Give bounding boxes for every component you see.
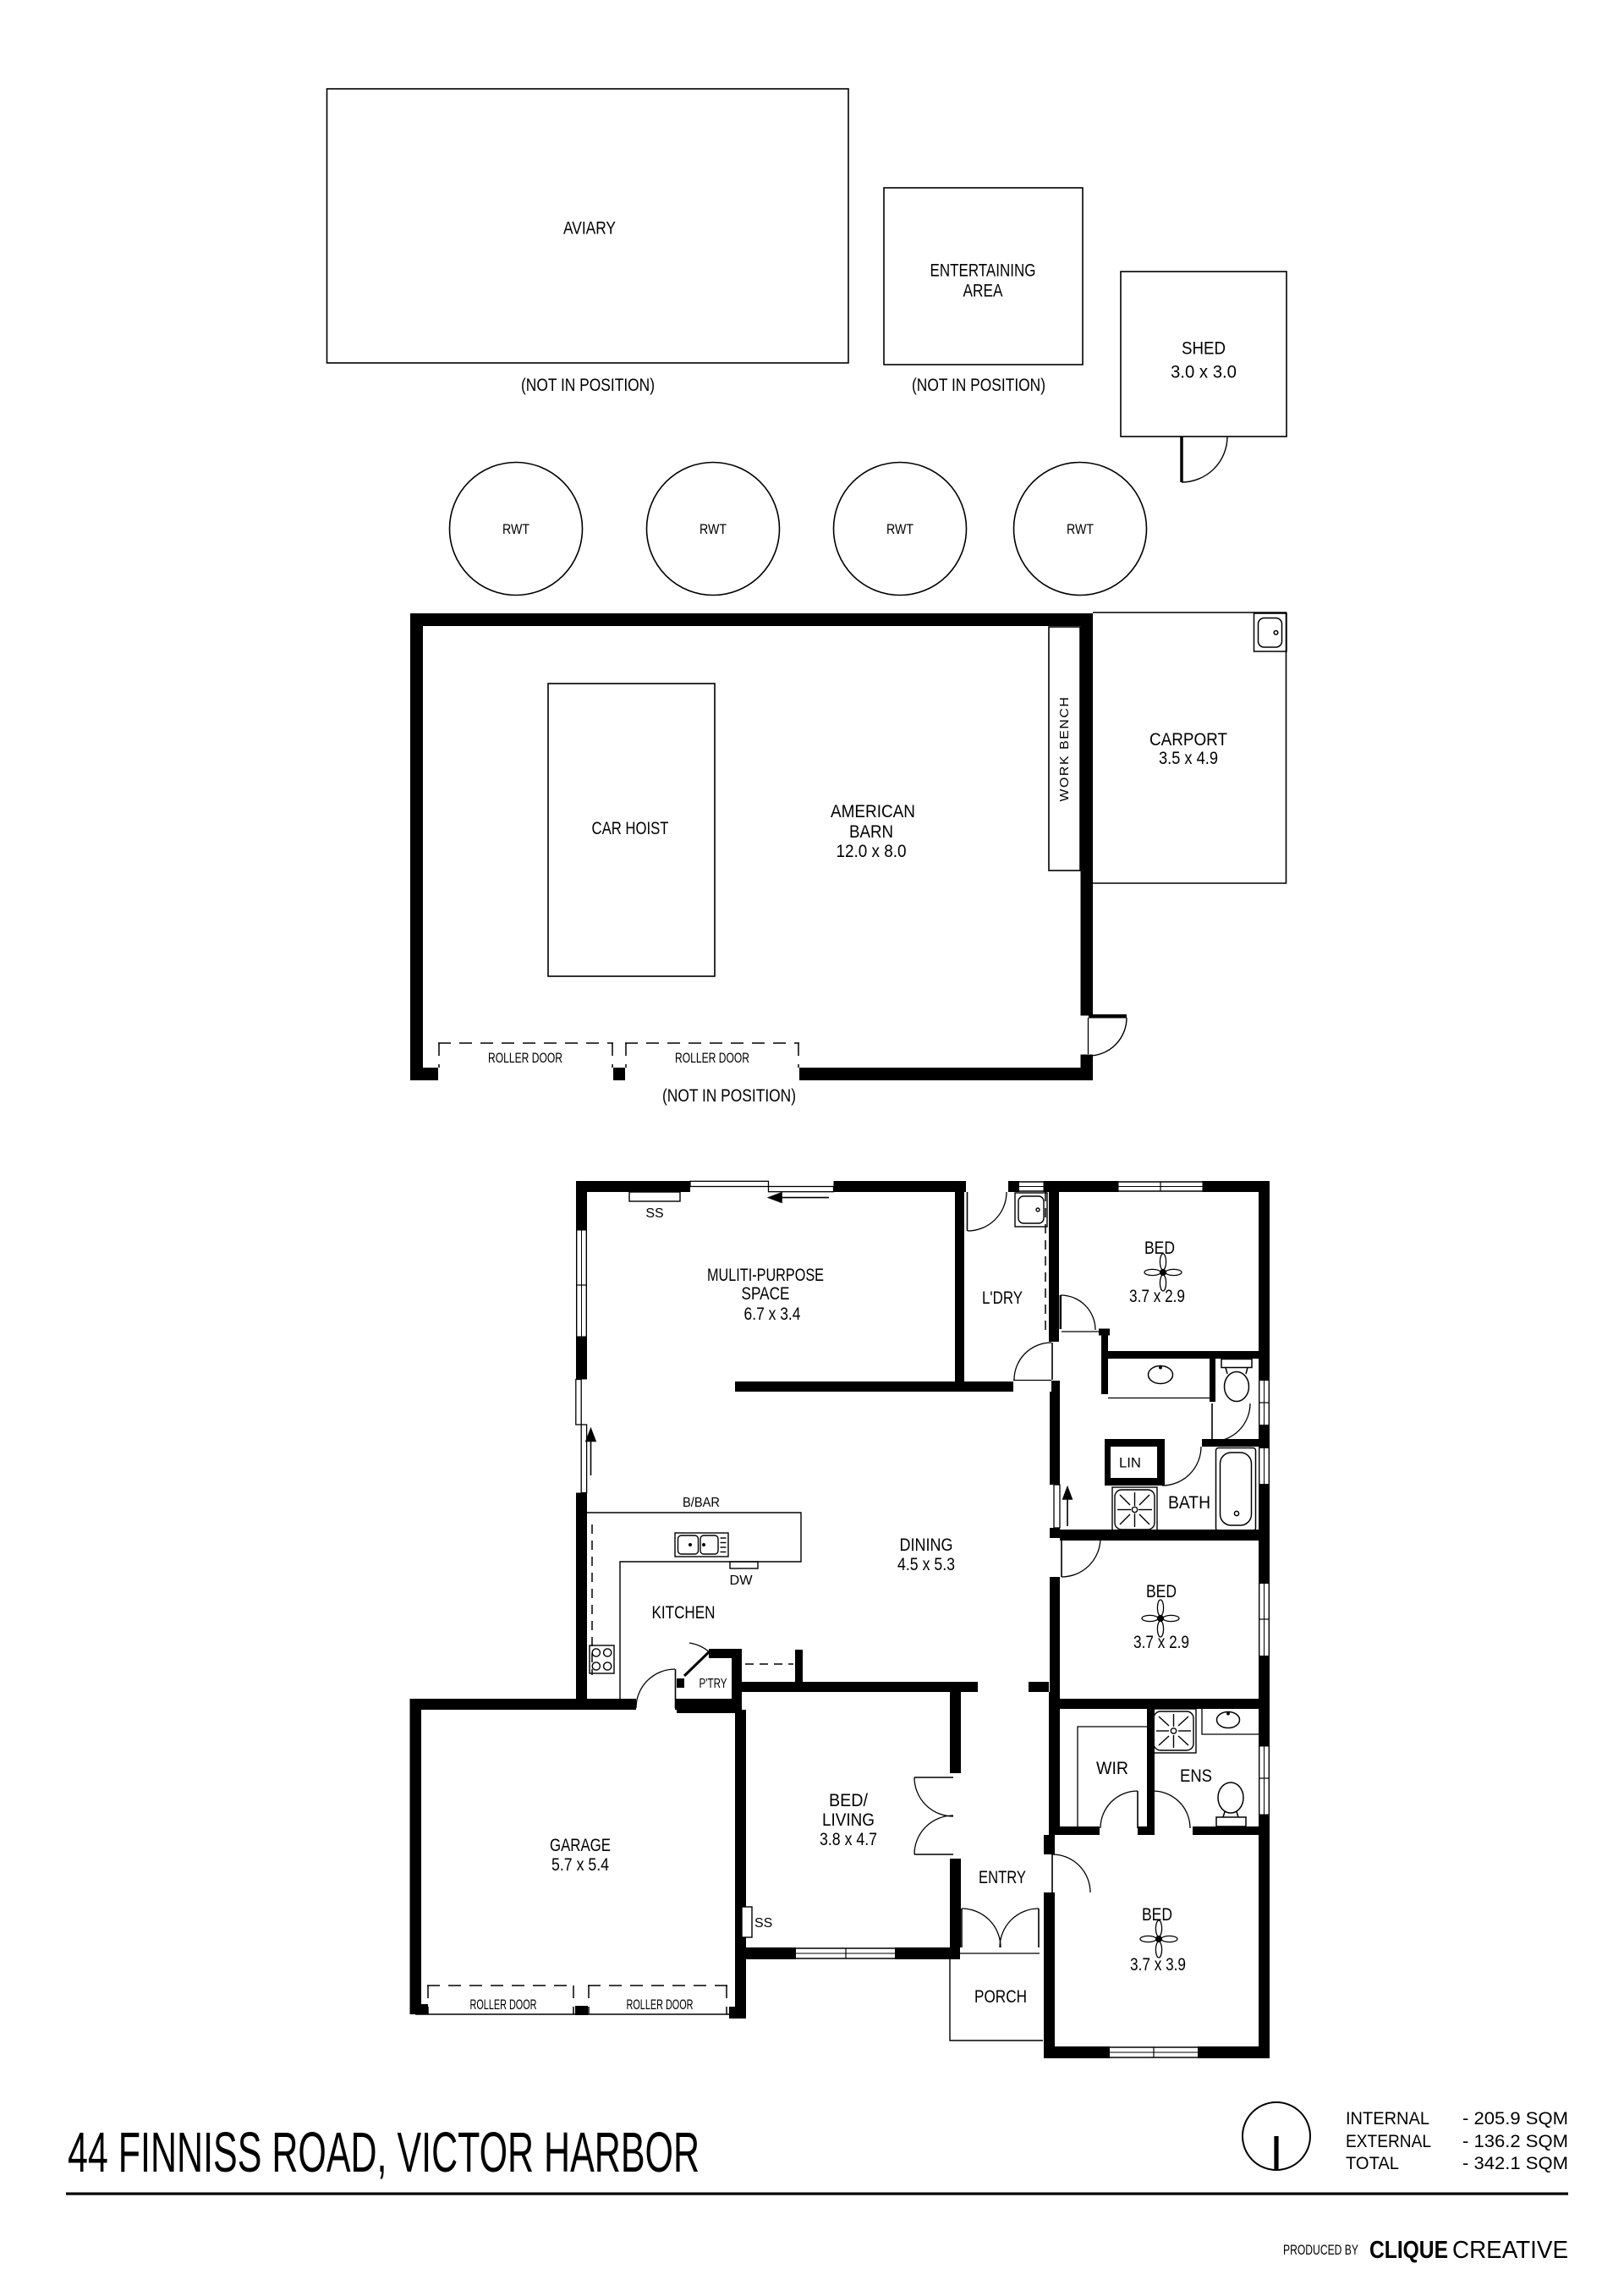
svg-text:5.7 x 5.4: 5.7 x 5.4 — [551, 1855, 609, 1875]
svg-text:P'TRY: P'TRY — [700, 1677, 727, 1691]
svg-text:GARAGE: GARAGE — [550, 1836, 611, 1855]
svg-text:CLIQUE: CLIQUE — [1369, 2237, 1448, 2264]
svg-text:ENS: ENS — [1180, 1766, 1212, 1786]
svg-text:- 342.1 SQM: - 342.1 SQM — [1462, 2153, 1568, 2173]
svg-text:3.5 x 4.9: 3.5 x 4.9 — [1159, 749, 1218, 768]
svg-text:BED: BED — [1144, 1239, 1175, 1258]
svg-text:BED: BED — [1146, 1582, 1177, 1601]
svg-text:ROLLER DOOR: ROLLER DOOR — [627, 1997, 694, 2013]
svg-text:RWT: RWT — [700, 521, 727, 537]
svg-text:SHED: SHED — [1182, 339, 1226, 359]
svg-text:CREATIVE: CREATIVE — [1452, 2237, 1568, 2264]
svg-text:PRODUCED BY: PRODUCED BY — [1283, 2243, 1358, 2258]
svg-text:BED/: BED/ — [829, 1791, 868, 1810]
svg-text:AVIARY: AVIARY — [563, 219, 616, 239]
svg-text:WIR: WIR — [1096, 1759, 1128, 1778]
svg-text:- 205.9 SQM: - 205.9 SQM — [1462, 2108, 1568, 2128]
svg-text:ENTRY: ENTRY — [979, 1868, 1026, 1887]
svg-text:SS: SS — [754, 1916, 772, 1931]
svg-text:AMERICAN: AMERICAN — [831, 802, 915, 821]
svg-text:ROLLER DOOR: ROLLER DOOR — [488, 1051, 562, 1066]
svg-text:DW: DW — [730, 1574, 754, 1588]
svg-text:MULITI-PURPOSE: MULITI-PURPOSE — [707, 1266, 824, 1285]
svg-text:TOTAL: TOTAL — [1346, 2153, 1399, 2173]
svg-text:LIN: LIN — [1119, 1455, 1141, 1471]
svg-text:AREA: AREA — [963, 282, 1003, 301]
svg-text:L'DRY: L'DRY — [982, 1288, 1023, 1308]
svg-text:3.7 x 2.9: 3.7 x 2.9 — [1129, 1287, 1185, 1306]
svg-text:3.7 x 3.9: 3.7 x 3.9 — [1130, 1955, 1186, 1975]
svg-text:(NOT IN POSITION): (NOT IN POSITION) — [662, 1086, 796, 1106]
svg-text:KITCHEN: KITCHEN — [652, 1603, 716, 1623]
svg-text:PORCH: PORCH — [974, 1987, 1027, 2007]
svg-text:SPACE: SPACE — [742, 1284, 790, 1304]
svg-text:44 FINNISS ROAD, VICTOR HARBOR: 44 FINNISS ROAD, VICTOR HARBOR — [68, 2121, 700, 2184]
svg-text:WORK BENCH: WORK BENCH — [1058, 696, 1072, 802]
svg-text:RWT: RWT — [886, 521, 913, 537]
svg-text:B/BAR: B/BAR — [683, 1496, 720, 1510]
svg-text:ROLLER DOOR: ROLLER DOOR — [675, 1051, 749, 1066]
svg-text:12.0 x 8.0: 12.0 x 8.0 — [837, 842, 907, 861]
svg-text:LIVING: LIVING — [822, 1810, 875, 1830]
svg-text:EXTERNAL: EXTERNAL — [1346, 2131, 1431, 2151]
svg-text:3.8 x 4.7: 3.8 x 4.7 — [820, 1830, 877, 1849]
svg-text:BARN: BARN — [849, 822, 893, 842]
svg-text:INTERNAL: INTERNAL — [1346, 2108, 1429, 2128]
svg-text:(NOT IN POSITION): (NOT IN POSITION) — [521, 376, 655, 395]
svg-text:ENTERTAINING: ENTERTAINING — [930, 261, 1036, 281]
svg-text:- 136.2 SQM: - 136.2 SQM — [1462, 2131, 1568, 2151]
svg-text:(NOT IN POSITION): (NOT IN POSITION) — [912, 376, 1045, 395]
svg-text:CARPORT: CARPORT — [1149, 730, 1227, 750]
svg-text:RWT: RWT — [502, 521, 529, 537]
svg-text:4.5 x 5.3: 4.5 x 5.3 — [897, 1555, 955, 1574]
svg-text:DINING: DINING — [900, 1535, 953, 1555]
svg-text:6.7 x 3.4: 6.7 x 3.4 — [744, 1305, 801, 1324]
svg-text:3.7 x 2.9: 3.7 x 2.9 — [1133, 1633, 1189, 1652]
svg-text:CAR HOIST: CAR HOIST — [592, 819, 669, 838]
svg-text:SS: SS — [645, 1206, 663, 1221]
svg-text:BATH: BATH — [1168, 1493, 1210, 1513]
svg-text:ROLLER DOOR: ROLLER DOOR — [470, 1997, 537, 2013]
svg-text:RWT: RWT — [1067, 521, 1094, 537]
svg-text:3.0 x 3.0: 3.0 x 3.0 — [1171, 363, 1237, 382]
